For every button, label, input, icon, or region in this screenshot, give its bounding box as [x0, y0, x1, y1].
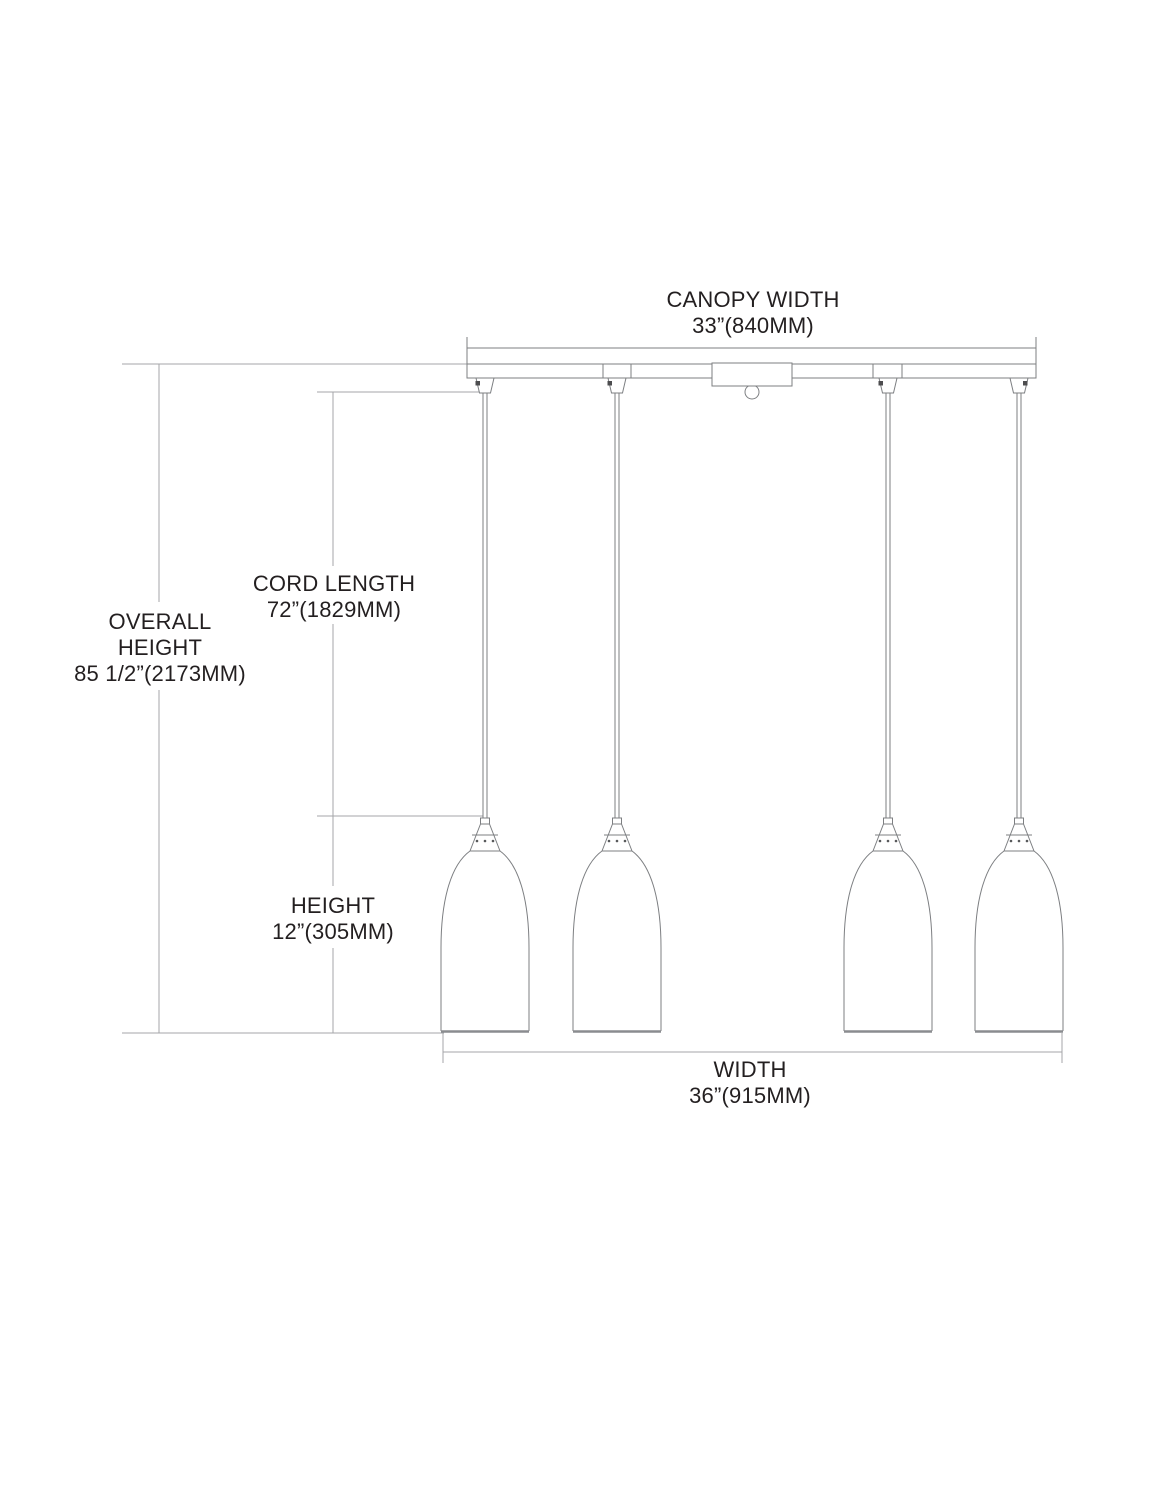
- setscrew-2: [608, 381, 613, 386]
- width-value: 36”(915MM): [689, 1083, 811, 1109]
- cord-length-dimension: [317, 392, 479, 886]
- pendant-2: [573, 378, 661, 1032]
- pendant-3: [844, 378, 932, 1032]
- line-drawing: [0, 0, 1159, 1500]
- canopy-width-title: CANOPY WIDTH: [666, 287, 839, 313]
- height-value: 12”(305MM): [272, 919, 394, 945]
- canopy-block-3: [873, 364, 902, 378]
- width-title: WIDTH: [689, 1057, 811, 1083]
- canopy-bar: [467, 337, 1036, 399]
- canopy-knob: [745, 385, 759, 399]
- diagram-canvas: CANOPY WIDTH 33”(840MM) CORD LENGTH 72”(…: [0, 0, 1159, 1500]
- overall-height-label: OVERALL HEIGHT 85 1/2”(2173MM): [74, 609, 246, 687]
- height-title: HEIGHT: [272, 893, 394, 919]
- overall-height-title-2: HEIGHT: [74, 635, 246, 661]
- overall-height-value: 85 1/2”(2173MM): [74, 661, 246, 687]
- setscrew-4: [1023, 381, 1028, 386]
- canopy-block-2: [603, 364, 631, 378]
- pendant-4: [975, 378, 1063, 1032]
- height-label: HEIGHT 12”(305MM): [272, 893, 394, 945]
- cord-length-value: 72”(1829MM): [253, 597, 415, 623]
- canopy-mounting-plate: [712, 363, 792, 386]
- cord-length-title: CORD LENGTH: [253, 571, 415, 597]
- canopy-width-label: CANOPY WIDTH 33”(840MM): [666, 287, 839, 339]
- pendant-1: [441, 378, 529, 1032]
- canopy-width-value: 33”(840MM): [666, 313, 839, 339]
- width-label: WIDTH 36”(915MM): [689, 1057, 811, 1109]
- setscrew-3: [879, 381, 884, 386]
- cord-length-label: CORD LENGTH 72”(1829MM): [253, 571, 415, 623]
- overall-height-title-1: OVERALL: [74, 609, 246, 635]
- setscrew-1: [476, 381, 481, 386]
